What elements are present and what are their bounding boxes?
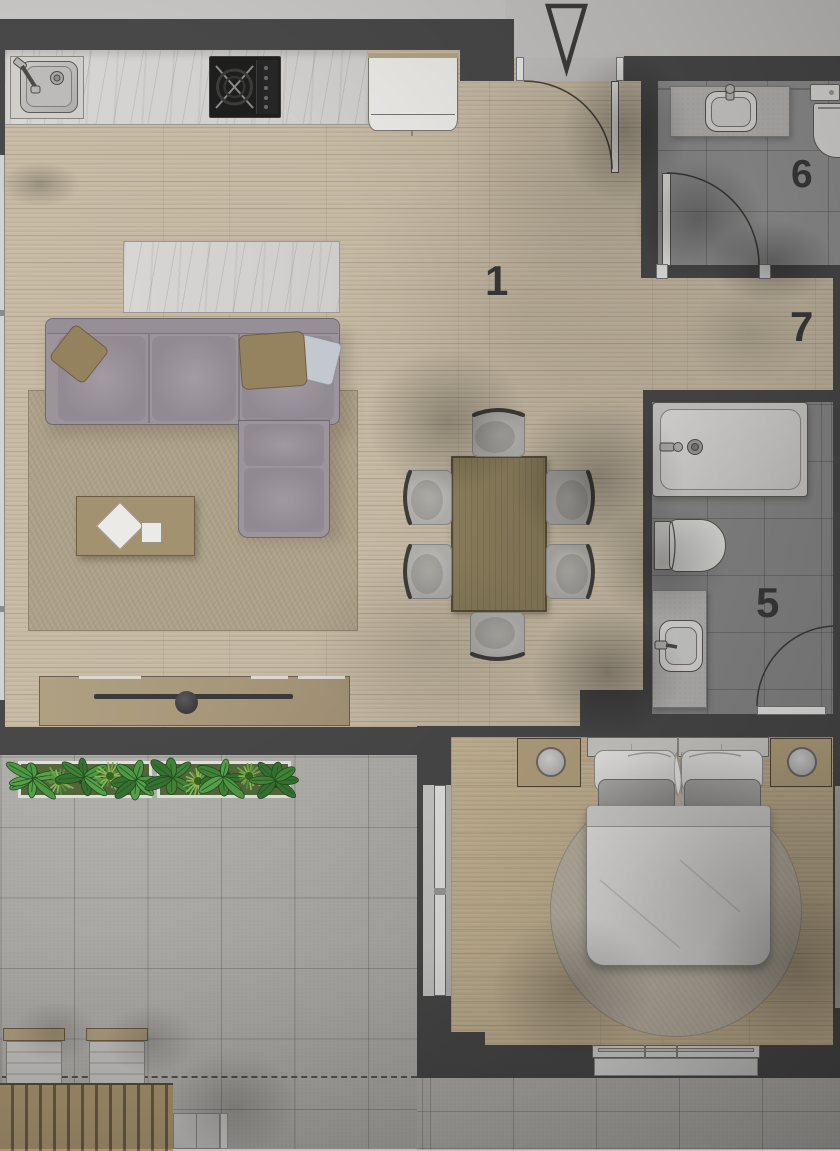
svg-text:7: 7 — [790, 303, 813, 350]
svg-text:5: 5 — [756, 579, 779, 626]
svg-text:6: 6 — [791, 153, 813, 196]
svg-text:1: 1 — [485, 257, 508, 304]
